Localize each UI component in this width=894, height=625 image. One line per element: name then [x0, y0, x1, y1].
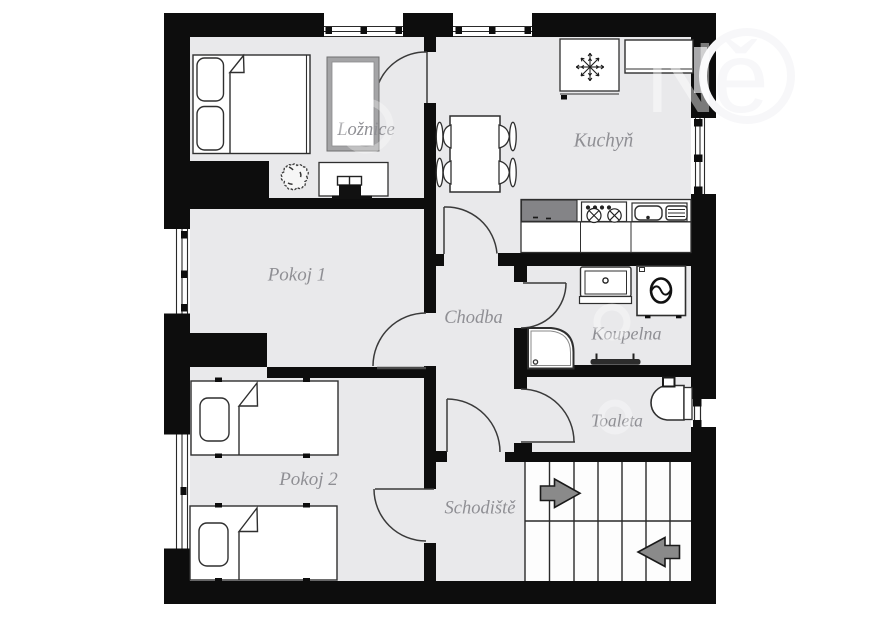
svg-text:Schodiště: Schodiště — [445, 499, 517, 519]
svg-text:Pokoj 2: Pokoj 2 — [278, 469, 338, 490]
svg-text:Kuchyň: Kuchyň — [573, 131, 634, 152]
svg-text:Pokoj 1: Pokoj 1 — [267, 265, 327, 286]
svg-text:Chodba: Chodba — [444, 308, 503, 328]
svg-text:N: N — [645, 22, 717, 134]
svg-text:ě: ě — [713, 22, 769, 134]
